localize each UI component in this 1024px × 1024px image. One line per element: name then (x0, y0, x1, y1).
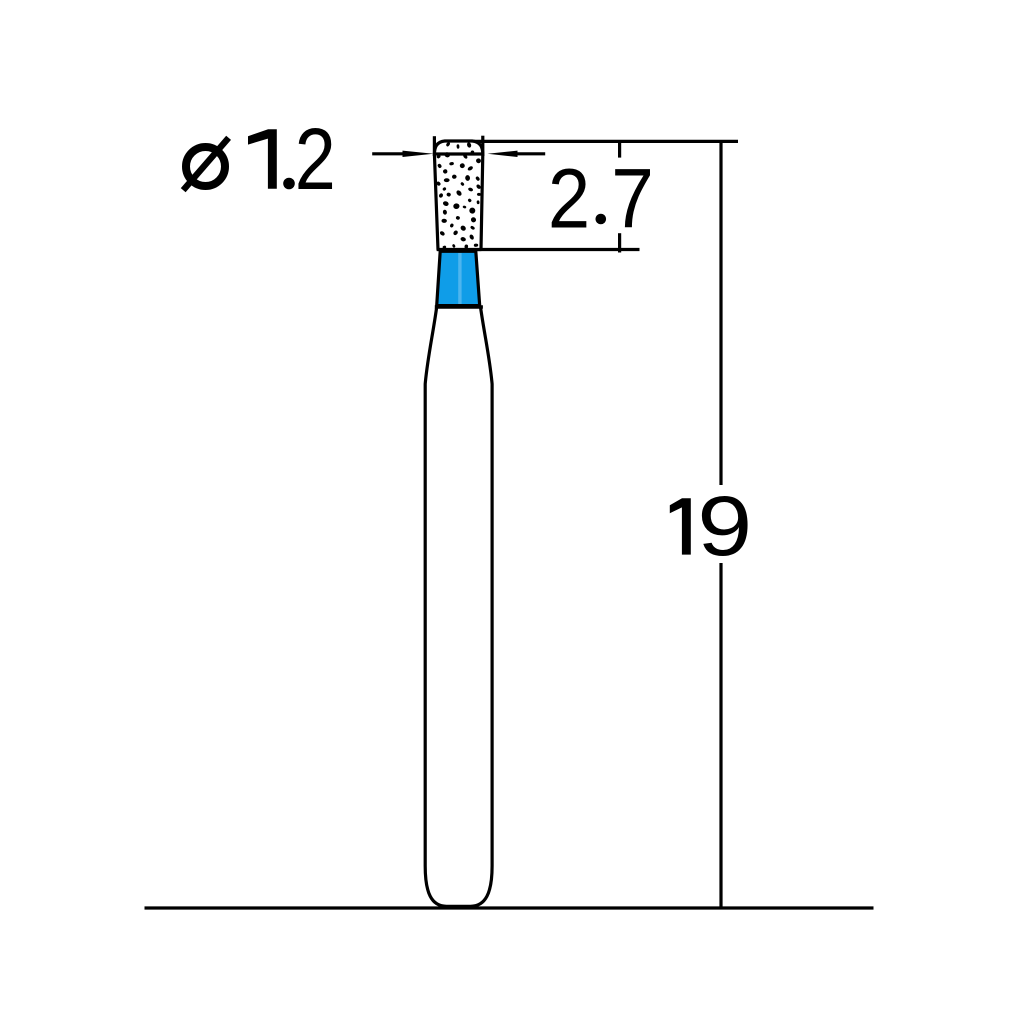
svg-text:9: 9 (697, 479, 752, 573)
svg-text:2: 2 (548, 152, 590, 246)
svg-text:7: 7 (611, 152, 654, 246)
svg-text:2: 2 (295, 110, 336, 208)
